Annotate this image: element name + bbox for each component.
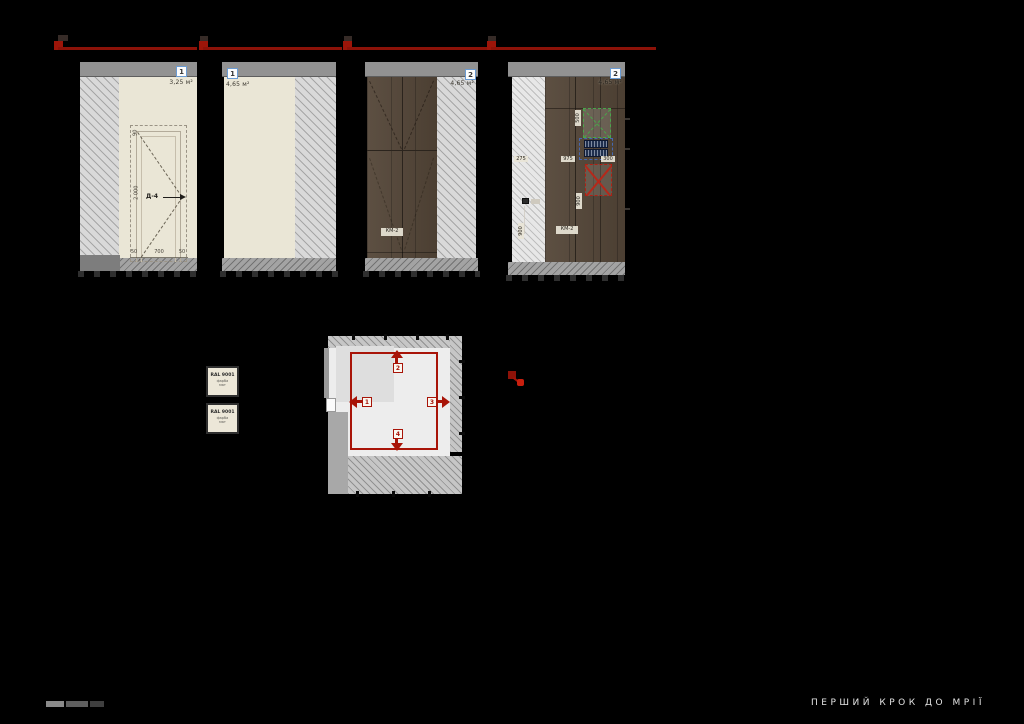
plan-door-block bbox=[326, 398, 336, 412]
plan-tick bbox=[352, 334, 355, 340]
elev4-ceiling-band bbox=[508, 62, 625, 77]
footer-logo bbox=[46, 701, 64, 707]
view-ref-line-3 bbox=[347, 47, 488, 50]
elev4-note-tick bbox=[625, 208, 630, 210]
elev4-socket bbox=[522, 198, 529, 204]
plan-tick bbox=[356, 491, 359, 497]
plan-tick bbox=[446, 334, 449, 340]
plan-tick bbox=[416, 334, 419, 340]
elev1-door-tag: Д-4 bbox=[146, 193, 164, 200]
plan-view-marker-1: 1 bbox=[362, 397, 372, 407]
view-ref-line-2 bbox=[203, 47, 342, 50]
plan-left-wall bbox=[324, 348, 329, 398]
footer-logo bbox=[66, 701, 88, 707]
swatch-code: RAL 9001 bbox=[208, 373, 237, 379]
elev4-dim-h-right: 300 bbox=[601, 156, 615, 162]
elev1-area-label: 3,25 м² bbox=[130, 79, 193, 86]
elev4-dim-h-left: 275 bbox=[514, 156, 528, 162]
design-board: 1 3,25 м² 90 2 000 50 700 50 Д-4 1 4,65 … bbox=[0, 0, 1024, 724]
elev4-note-tick bbox=[625, 148, 630, 150]
elev3-ceiling-band bbox=[365, 62, 478, 77]
footer-logo bbox=[90, 701, 104, 707]
plan-marker-1-arrow-icon bbox=[349, 396, 357, 408]
elev4-dim-leader bbox=[524, 206, 525, 234]
plan-bottom-wall bbox=[348, 456, 462, 494]
plan-marker-4-arrow-icon bbox=[391, 443, 403, 451]
elev4-wall-hatch bbox=[512, 77, 545, 262]
material-swatch-1: RAL 9001 фарба мат bbox=[206, 366, 239, 397]
elev4-dim-appliance: 500 bbox=[575, 110, 581, 126]
elev4-panel-seam bbox=[575, 77, 576, 262]
plan-marker-2-arrow-icon bbox=[391, 350, 403, 358]
elev2-wall-hatch bbox=[295, 77, 336, 258]
elev4-socket-tag bbox=[531, 199, 540, 204]
elev1-dim-bottom-right: 50 bbox=[176, 250, 188, 256]
plan-tick bbox=[428, 491, 431, 497]
elev4-ground-hatch bbox=[506, 275, 627, 281]
plan-tick bbox=[459, 360, 465, 363]
elev1-door-tag-arrow-line bbox=[163, 197, 180, 198]
elev4-furniture-tag: КМ-2 bbox=[556, 226, 578, 234]
elev2-ceiling-band bbox=[222, 62, 336, 77]
elev1-dim-line bbox=[130, 257, 188, 258]
footer-tagline: ПЕРШИЙ КРОК ДО МРІЇ bbox=[700, 698, 985, 708]
plan-tick bbox=[459, 432, 465, 435]
elev4-dim-wall: 900 bbox=[518, 223, 524, 239]
elev4-base bbox=[508, 262, 625, 275]
elev1-wall-hatch bbox=[80, 77, 119, 258]
elev1-dim-bottom-left: 50 bbox=[128, 250, 140, 256]
elev4-note-tick bbox=[625, 118, 630, 120]
elev3-plinth-line bbox=[367, 252, 437, 253]
plan-marker-3-arrow-icon bbox=[442, 396, 450, 408]
swatch-code: RAL 9001 bbox=[208, 410, 237, 416]
plan-view-marker-4: 4 bbox=[393, 429, 403, 439]
plan-tick bbox=[392, 491, 395, 497]
elev2-base bbox=[222, 258, 336, 271]
elev3-wall-hatch bbox=[437, 77, 476, 258]
elev2-area-label: 4,65 м² bbox=[226, 81, 271, 88]
elev1-dim-height: 2 000 bbox=[134, 182, 140, 204]
elev4-area-label: 4,65 м² bbox=[572, 79, 622, 86]
view-ref-line-4 bbox=[491, 47, 656, 50]
elev2-view-badge: 1 bbox=[227, 68, 238, 79]
elev3-area-label: 4,65 м² bbox=[424, 80, 474, 87]
elev1-dim-top: 90 bbox=[133, 125, 139, 141]
elev1-view-badge: 1 bbox=[176, 66, 187, 77]
elev4-dim-h-center: 975 bbox=[561, 156, 575, 162]
elev4-dim-panel: 900 bbox=[576, 193, 582, 209]
plan-tick bbox=[384, 334, 387, 340]
elev1-door-tag-arrow-icon bbox=[180, 194, 186, 200]
elev3-divider-line bbox=[367, 150, 437, 151]
elev3-ground-hatch bbox=[363, 271, 480, 277]
swatch-line3: мат bbox=[208, 420, 237, 425]
plan-tick bbox=[459, 396, 465, 399]
material-swatch-2: RAL 9001 фарба мат bbox=[206, 403, 239, 434]
elev3-view-badge: 2 bbox=[465, 69, 476, 80]
plan-view-marker-3: 3 bbox=[427, 397, 437, 407]
elev3-base bbox=[365, 258, 478, 271]
elev1-base-block bbox=[80, 255, 120, 271]
elev2-wall-paint bbox=[224, 77, 295, 262]
elev2-ground-hatch bbox=[220, 271, 338, 277]
elev1-dim-bottom-center: 700 bbox=[149, 250, 169, 256]
elev4-view-badge: 2 bbox=[610, 68, 621, 79]
elev1-ground-hatch bbox=[78, 271, 199, 277]
plan-key-dot-icon bbox=[517, 379, 524, 386]
plan-left-wall-mass bbox=[328, 412, 348, 494]
view-ref-line-1 bbox=[58, 47, 197, 50]
elev4-device-chip bbox=[584, 140, 608, 148]
elev3-furniture-tag: КМ-2 bbox=[381, 228, 403, 236]
plan-view-marker-2: 2 bbox=[393, 363, 403, 373]
swatch-line3: мат bbox=[208, 383, 237, 388]
